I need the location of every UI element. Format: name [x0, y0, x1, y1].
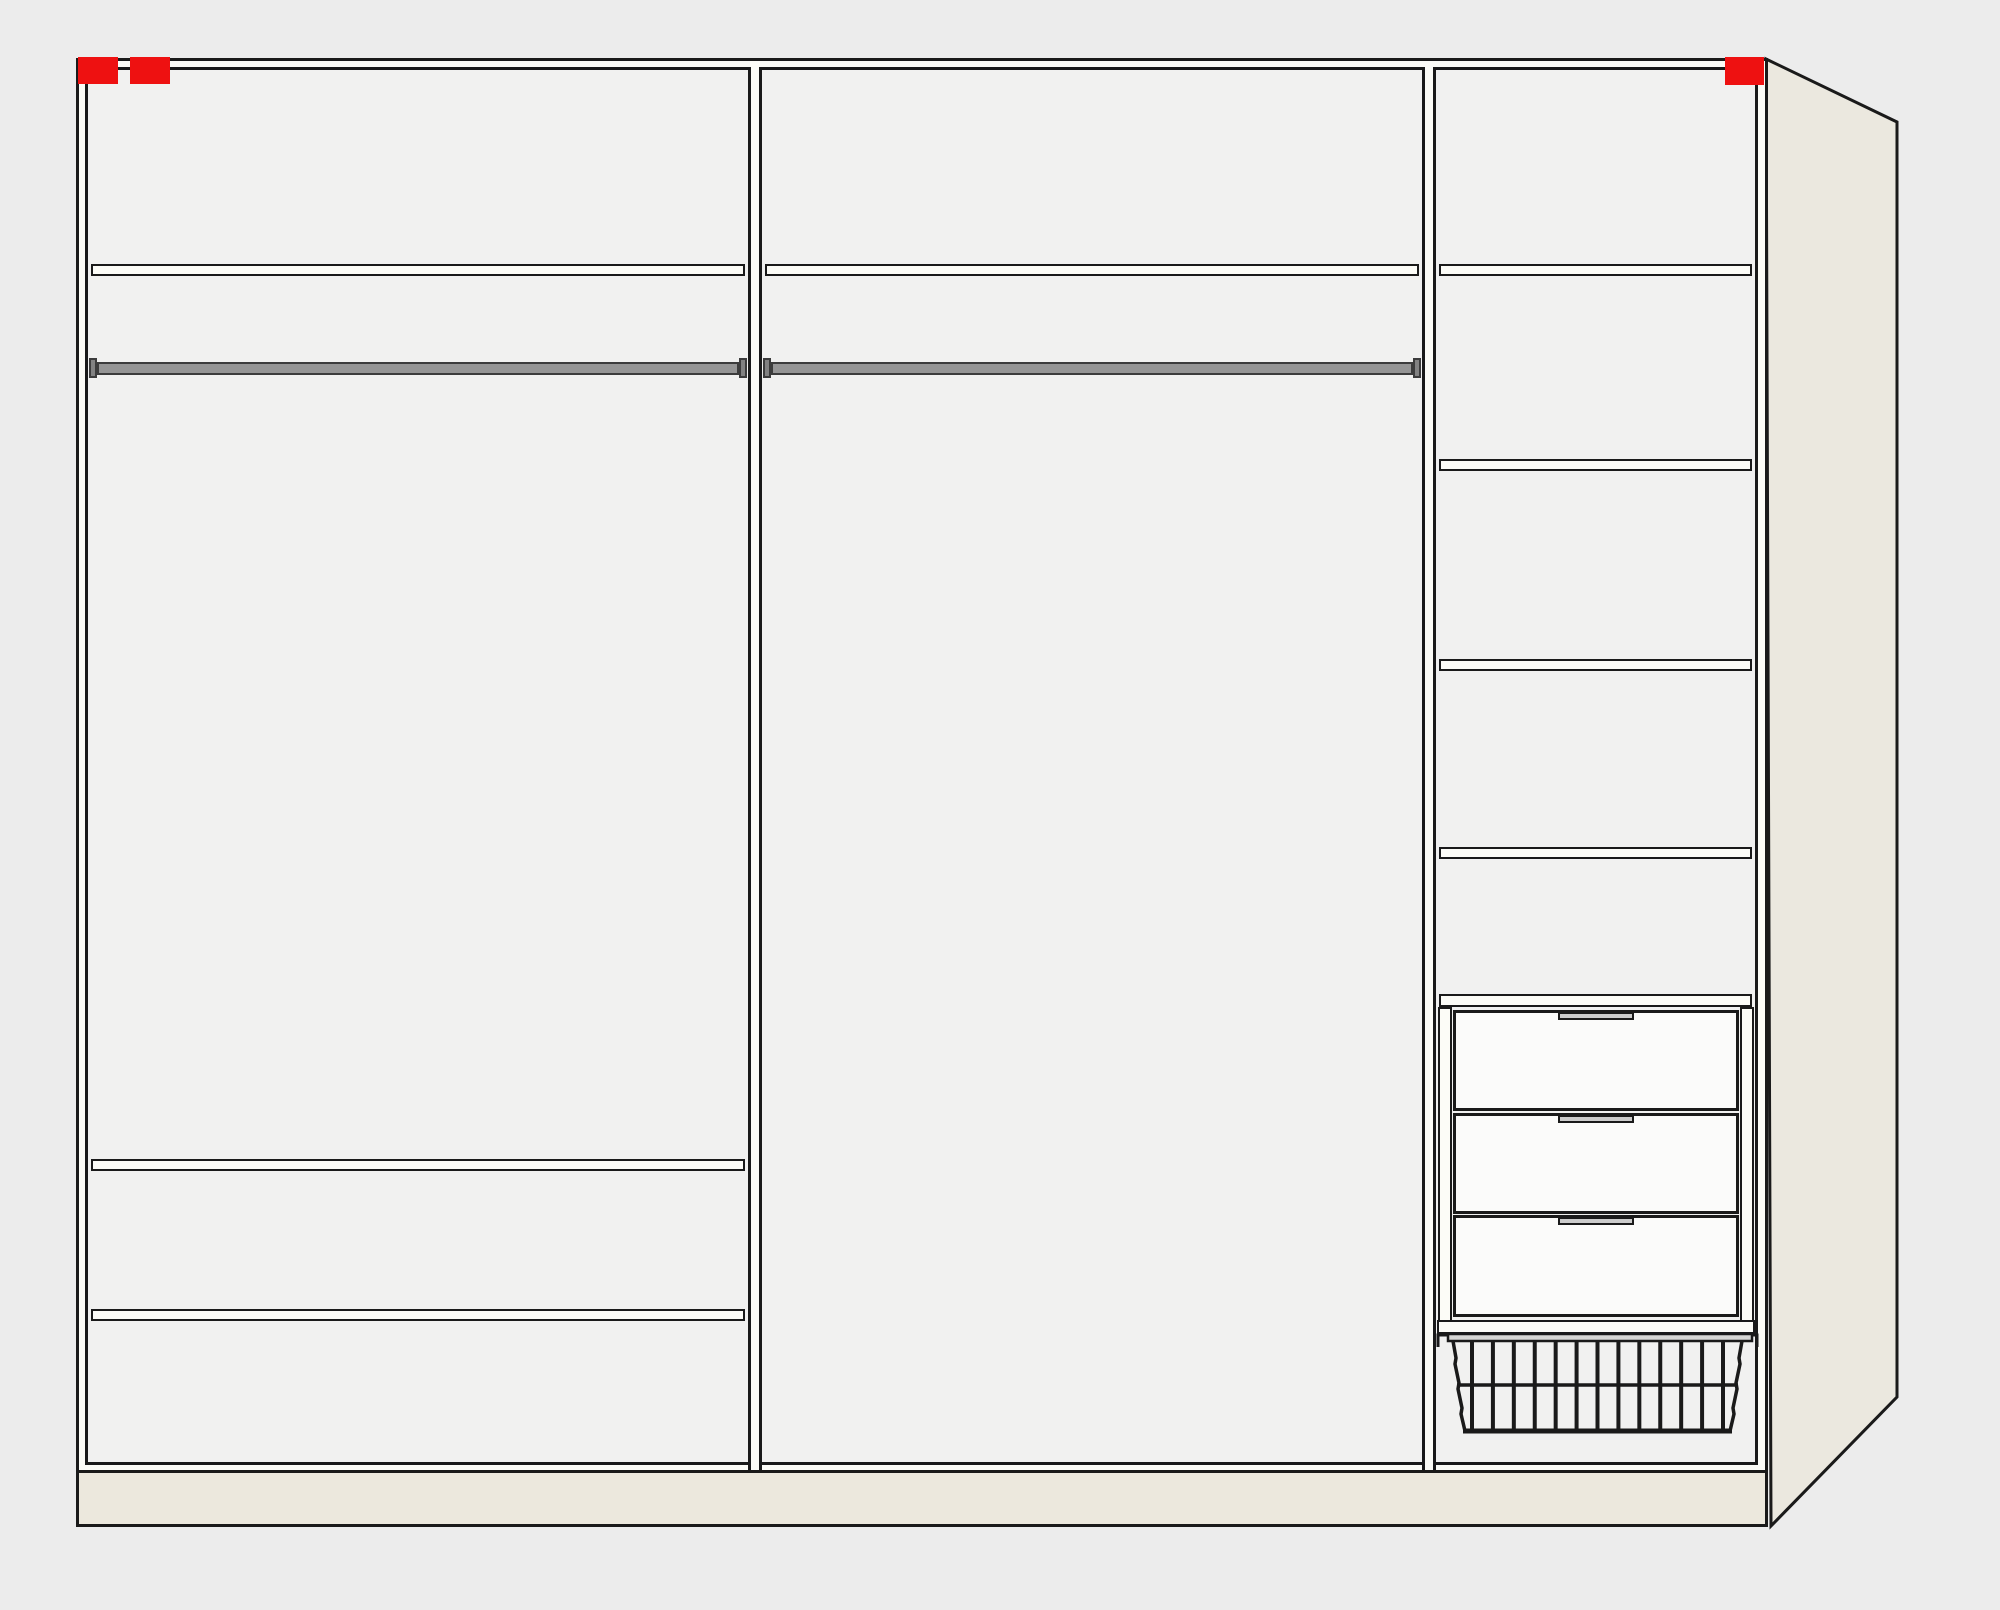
middle-clothes-rail[interactable] — [771, 362, 1413, 375]
drawer-3[interactable] — [1453, 1215, 1739, 1317]
warning-marker-top-right[interactable] — [1725, 57, 1764, 85]
right-shelf-3[interactable] — [1439, 659, 1752, 671]
wire-basket[interactable] — [1430, 1328, 1765, 1446]
right-shelf-4[interactable] — [1439, 847, 1752, 859]
drawer-2[interactable] — [1453, 1113, 1739, 1214]
rail-bracket — [89, 358, 97, 378]
left-clothes-rail[interactable] — [97, 362, 739, 375]
left-lower-shelf-2[interactable] — [91, 1309, 745, 1321]
side-panel — [1766, 59, 1897, 1526]
basket-top-bar — [1448, 1334, 1752, 1341]
warning-marker-top-left-b[interactable] — [130, 57, 170, 84]
drawer-1[interactable] — [1453, 1010, 1739, 1111]
middle-top-shelf[interactable] — [765, 264, 1419, 276]
drawer-1-handle[interactable] — [1558, 1012, 1634, 1020]
right-shelf-2[interactable] — [1439, 459, 1752, 471]
plinth — [79, 1470, 1765, 1524]
drawer-frame-left-rail — [1438, 1007, 1452, 1334]
rail-bracket — [763, 358, 771, 378]
left-top-shelf[interactable] — [91, 264, 745, 276]
drawer-unit-top-shelf[interactable] — [1439, 994, 1752, 1007]
warning-marker-top-left-a[interactable] — [78, 57, 118, 84]
divider-middle-right[interactable] — [1422, 67, 1436, 1470]
drawer-2-handle[interactable] — [1558, 1115, 1634, 1123]
wardrobe-diagram-canvas — [0, 0, 2000, 1610]
drawer-frame-right-rail — [1740, 1007, 1754, 1334]
rail-bracket — [739, 358, 747, 378]
rail-bracket — [1413, 358, 1421, 378]
divider-left-middle[interactable] — [748, 67, 762, 1470]
drawer-3-handle[interactable] — [1558, 1217, 1634, 1225]
right-shelf-1[interactable] — [1439, 264, 1752, 276]
left-lower-shelf-1[interactable] — [91, 1159, 745, 1171]
